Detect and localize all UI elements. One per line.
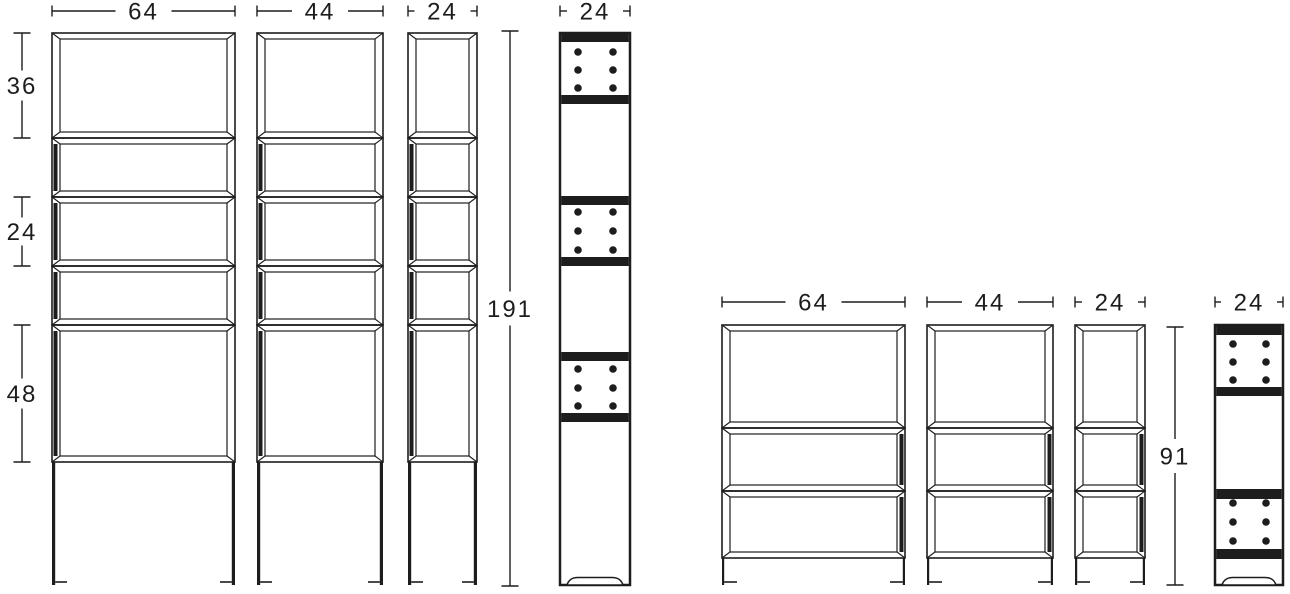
drawing-svg: 644424243624481916444242491 [0,0,1290,594]
height-dim-label: 191 [487,296,533,323]
width-dim-label: 24 [1095,290,1126,317]
width-dim-tall-0: 64 [52,0,235,26]
width-dim-short-0: 64 [722,290,905,317]
tall-side-unit [560,33,630,585]
short-front-unit-2 [1075,325,1145,585]
height-dim-label: 36 [7,73,38,100]
width-dim-tall-1: 44 [257,0,383,26]
opening-dim-36: 36 [7,33,38,138]
tall-front-unit-1 [257,33,383,585]
tall-front-unit-2 [408,33,477,585]
width-dim-label: 24 [1234,290,1265,317]
width-dim-tall-side: 24 [560,0,630,26]
opening-dim-24: 24 [7,197,38,266]
width-dim-label: 24 [427,0,458,26]
width-dim-label: 64 [128,0,159,26]
height-dim-label: 48 [7,381,38,408]
height-dim-label: 24 [7,219,38,246]
width-dim-label: 64 [798,290,829,317]
width-dim-short-1: 44 [927,290,1053,317]
width-dim-label: 44 [305,0,336,26]
opening-dim-48: 48 [7,325,38,462]
overall-height-dim-91: 91 [1160,327,1191,585]
height-dim-label: 91 [1160,444,1191,471]
short-shelving-group: 6444242491 [722,290,1283,586]
short-front-unit-1 [927,325,1053,585]
width-dim-label: 44 [975,290,1006,317]
short-front-unit-0 [722,325,905,585]
width-dim-label: 24 [580,0,611,26]
width-dim-short-2: 24 [1075,290,1145,317]
tall-shelving-group: 64442424362448191 [7,0,630,586]
tall-front-unit-0 [52,33,235,585]
width-dim-short-side: 24 [1215,290,1283,317]
width-dim-tall-2: 24 [408,0,477,26]
short-side-unit [1215,325,1283,585]
overall-height-dim-191: 191 [487,31,533,586]
shelving-dimension-drawing: 644424243624481916444242491 [0,0,1290,594]
